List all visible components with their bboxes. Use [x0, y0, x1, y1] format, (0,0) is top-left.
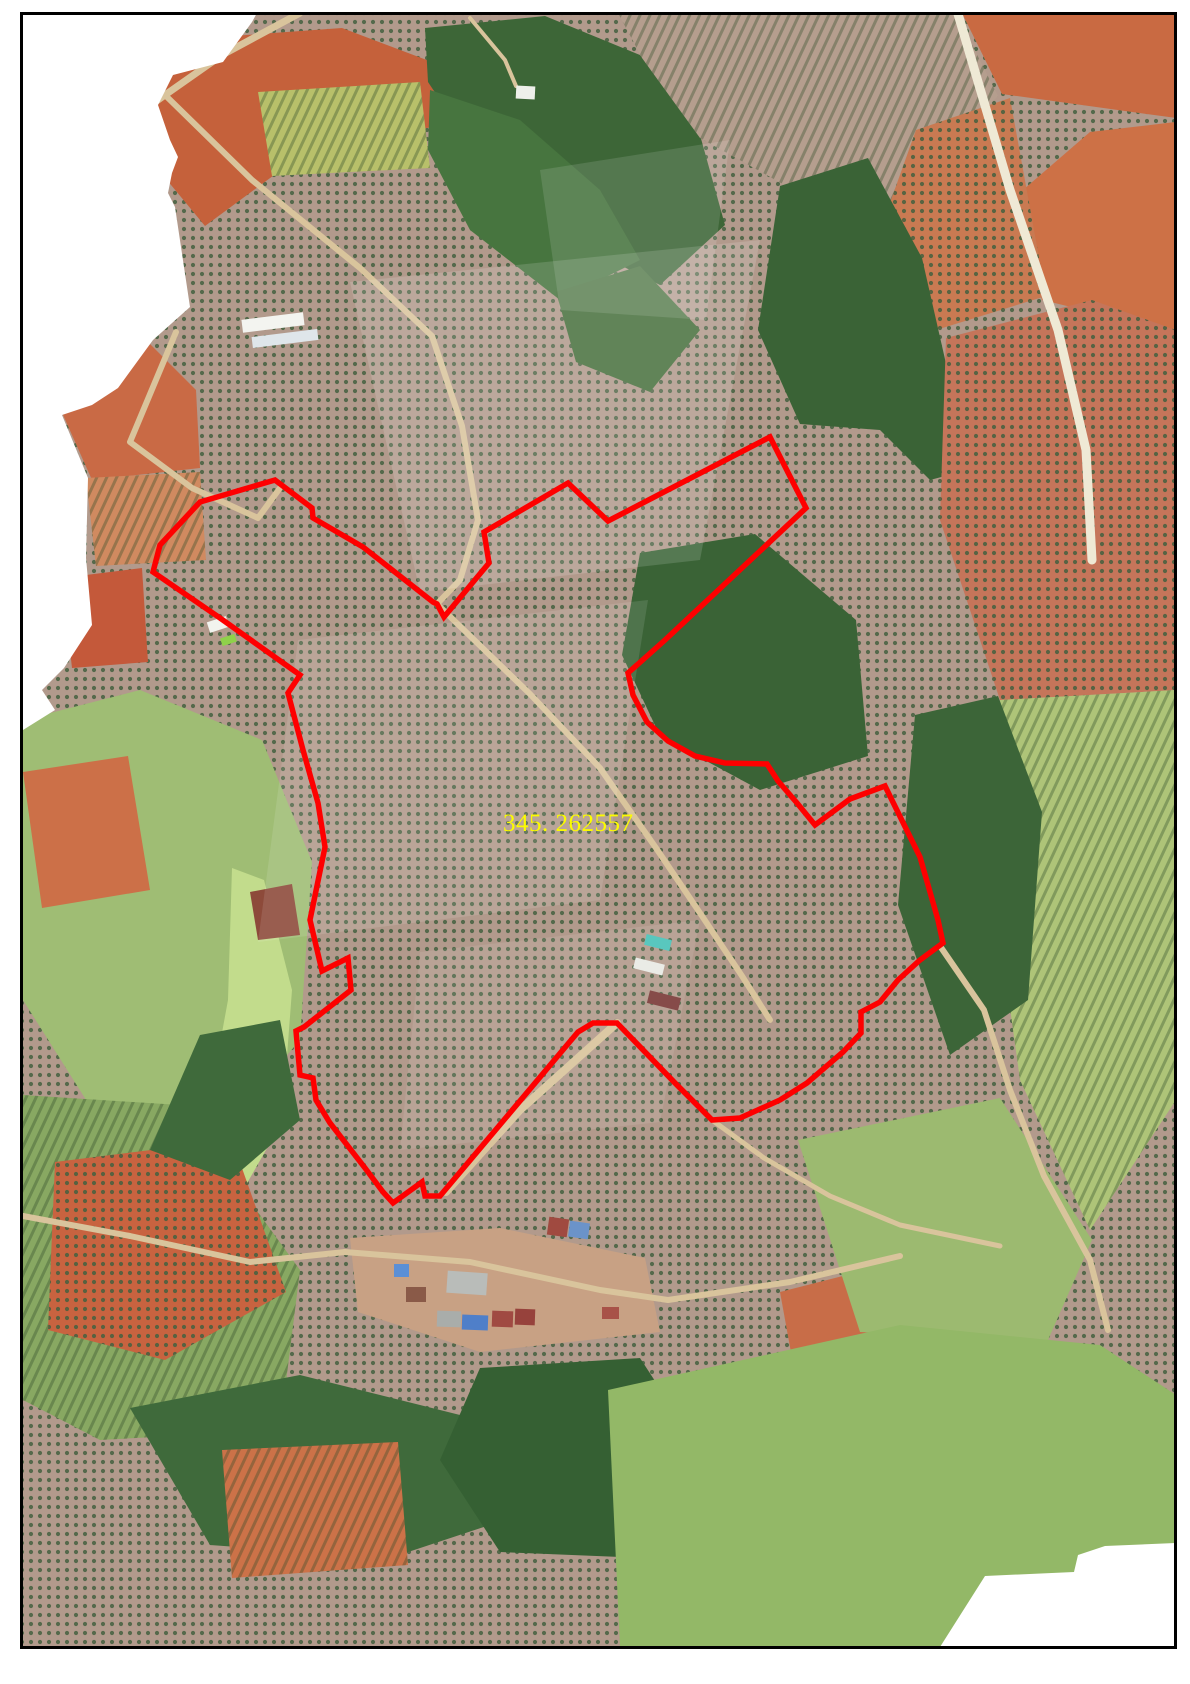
village-red-2	[515, 1309, 536, 1326]
village-blue-2	[462, 1315, 489, 1331]
village-blue-1	[394, 1264, 409, 1277]
area-label: 345. 262557	[503, 810, 634, 837]
crops-top-left-texture	[258, 82, 430, 176]
village-gray-1	[446, 1271, 487, 1296]
house-top-forest	[516, 86, 536, 100]
village-brown	[406, 1287, 426, 1302]
soil-bottom-center-texture	[222, 1442, 408, 1578]
village-red-4	[602, 1307, 619, 1319]
soil-left-mid	[23, 756, 150, 908]
village-red-3	[547, 1217, 569, 1238]
orthophoto-map-canvas: 345. 262557	[0, 0, 1190, 1684]
orthophoto-map-page: 345. 262557	[0, 0, 1190, 1684]
village-gray-2	[437, 1311, 462, 1328]
village-red-1	[492, 1311, 514, 1328]
haze-band	[400, 920, 700, 1150]
haze-band	[540, 140, 730, 320]
village-blue-3	[568, 1221, 590, 1240]
